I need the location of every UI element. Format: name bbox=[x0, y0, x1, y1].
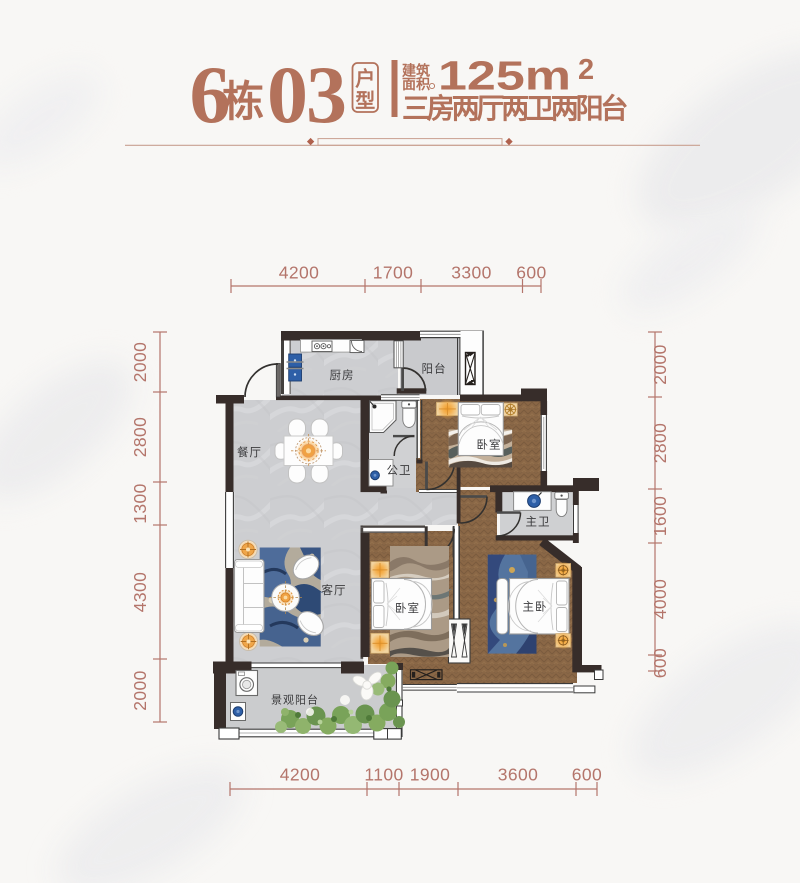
svg-text:1300: 1300 bbox=[130, 483, 150, 524]
svg-text:600: 600 bbox=[650, 648, 670, 678]
svg-text:1600: 1600 bbox=[650, 496, 670, 537]
svg-text:卧室: 卧室 bbox=[395, 601, 420, 615]
svg-text:栋: 栋 bbox=[222, 78, 264, 125]
svg-text:面积: 面积 bbox=[402, 76, 430, 92]
svg-text:600: 600 bbox=[516, 263, 546, 283]
svg-text:2000: 2000 bbox=[130, 670, 150, 711]
svg-text:3300: 3300 bbox=[451, 263, 492, 283]
svg-text:3600: 3600 bbox=[498, 765, 539, 785]
svg-text:03: 03 bbox=[267, 49, 345, 140]
svg-text:4200: 4200 bbox=[279, 263, 320, 283]
svg-text:2800: 2800 bbox=[130, 417, 150, 458]
svg-text:2: 2 bbox=[578, 54, 594, 86]
svg-text:户: 户 bbox=[355, 67, 375, 91]
svg-text:4300: 4300 bbox=[130, 572, 150, 613]
svg-text:公卫: 公卫 bbox=[387, 464, 412, 477]
svg-text:卧室: 卧室 bbox=[477, 438, 502, 452]
svg-text:2000: 2000 bbox=[130, 342, 150, 383]
svg-text:1100: 1100 bbox=[364, 765, 403, 785]
svg-text:客厅: 客厅 bbox=[322, 583, 347, 597]
svg-text:阳台: 阳台 bbox=[422, 362, 447, 376]
svg-text:2000: 2000 bbox=[650, 344, 670, 385]
svg-text:主卫: 主卫 bbox=[526, 516, 551, 529]
svg-text:1700: 1700 bbox=[373, 263, 414, 283]
svg-text:型: 型 bbox=[355, 90, 375, 113]
svg-text:4200: 4200 bbox=[280, 765, 321, 785]
svg-text:1900: 1900 bbox=[410, 765, 451, 785]
svg-text:景观阳台: 景观阳台 bbox=[271, 693, 319, 707]
svg-text:125m: 125m bbox=[438, 53, 571, 98]
svg-text:三房两厅两卫两阳台: 三房两厅两卫两阳台 bbox=[402, 92, 627, 124]
svg-text:600: 600 bbox=[572, 765, 602, 785]
svg-text:4000: 4000 bbox=[650, 579, 670, 620]
svg-text:主卧: 主卧 bbox=[523, 601, 548, 614]
svg-text:2800: 2800 bbox=[650, 423, 670, 464]
svg-text:餐厅: 餐厅 bbox=[237, 445, 262, 459]
svg-text:厨房: 厨房 bbox=[330, 369, 355, 382]
